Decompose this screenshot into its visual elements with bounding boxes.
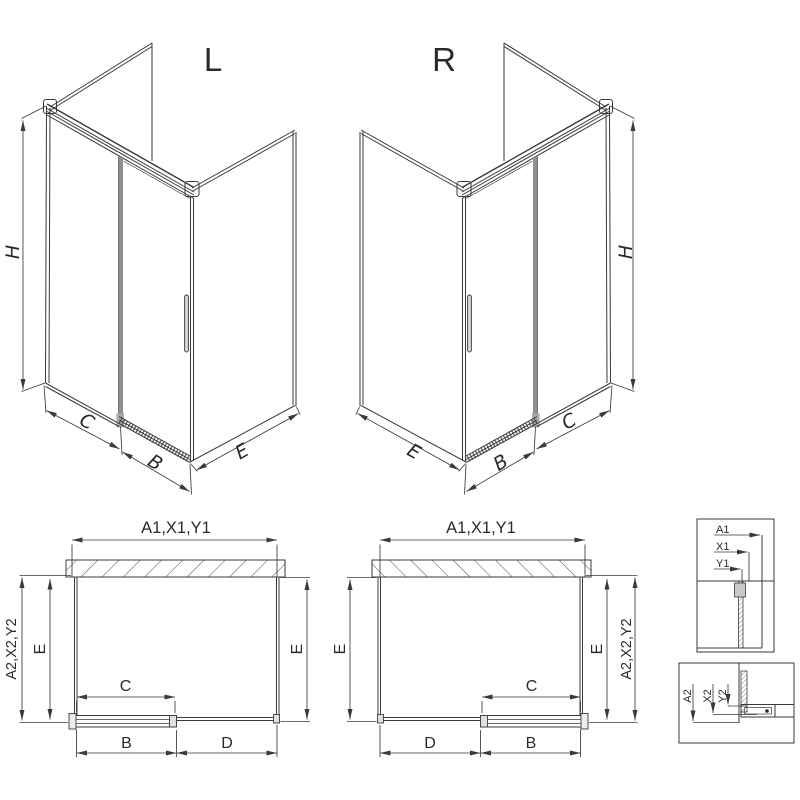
dim-label-width: A1,X1,Y1 [141,519,211,537]
dim-label-door: B [490,450,513,476]
dim-label-bottom-right: B [526,735,537,752]
detail-dim-y2: Y2 [717,689,729,702]
detail-width-box: A1 X1 Y1 [697,519,774,652]
iso-view-left: L H C B E [2,41,300,495]
technical-drawing-page: L H C B E R H C B E A1,X1,Y1 A2,X2,Y2 E … [0,0,800,800]
detail-dim-x2: X2 [702,689,714,702]
plan-view-left: A1,X1,Y1 A2,X2,Y2 E E C B D [4,519,310,757]
plan-view-right: A1,X1,Y1 A2,X2,Y2 E E C D B [332,519,638,757]
dim-label-panel: C [558,409,581,435]
dim-label-height: H [2,245,24,259]
view-label-right: R [432,41,456,78]
dim-label-door: B [144,450,167,476]
dim-label-panel: C [76,409,99,435]
dim-label-bottom-left: B [121,735,132,752]
dim-label-side: E [403,439,424,464]
dim-label-side: E [232,439,253,464]
detail-dim-y1: Y1 [716,558,729,570]
detail-dim-x1: X1 [716,541,729,553]
detail-dim-a2: A2 [682,689,694,702]
dim-label-depth: A2,X2,Y2 [4,618,20,679]
dim-label-bottom-left: D [424,735,436,752]
dim-label-side-right: E [289,644,306,655]
shower-enclosure-drawing: L H C B E R H C B E A1,X1,Y1 A2,X2,Y2 E … [0,0,800,800]
dim-label-door-glass: C [526,678,538,695]
dim-label-depth: A2,X2,Y2 [619,618,635,679]
dim-label-width: A1,X1,Y1 [446,519,516,537]
dim-label-height: H [615,245,637,259]
dim-label-side-left: E [32,644,49,655]
view-label-left: L [204,41,222,78]
dim-label-side-right: E [589,644,606,655]
detail-depth-box: A2 X2 Y2 [679,663,794,743]
iso-view-right: R H C B E [356,41,637,495]
dim-label-bottom-right: D [221,735,233,752]
detail-dim-a1: A1 [716,524,729,536]
dim-label-door-glass: C [120,678,132,695]
dim-label-side-left: E [332,644,349,655]
